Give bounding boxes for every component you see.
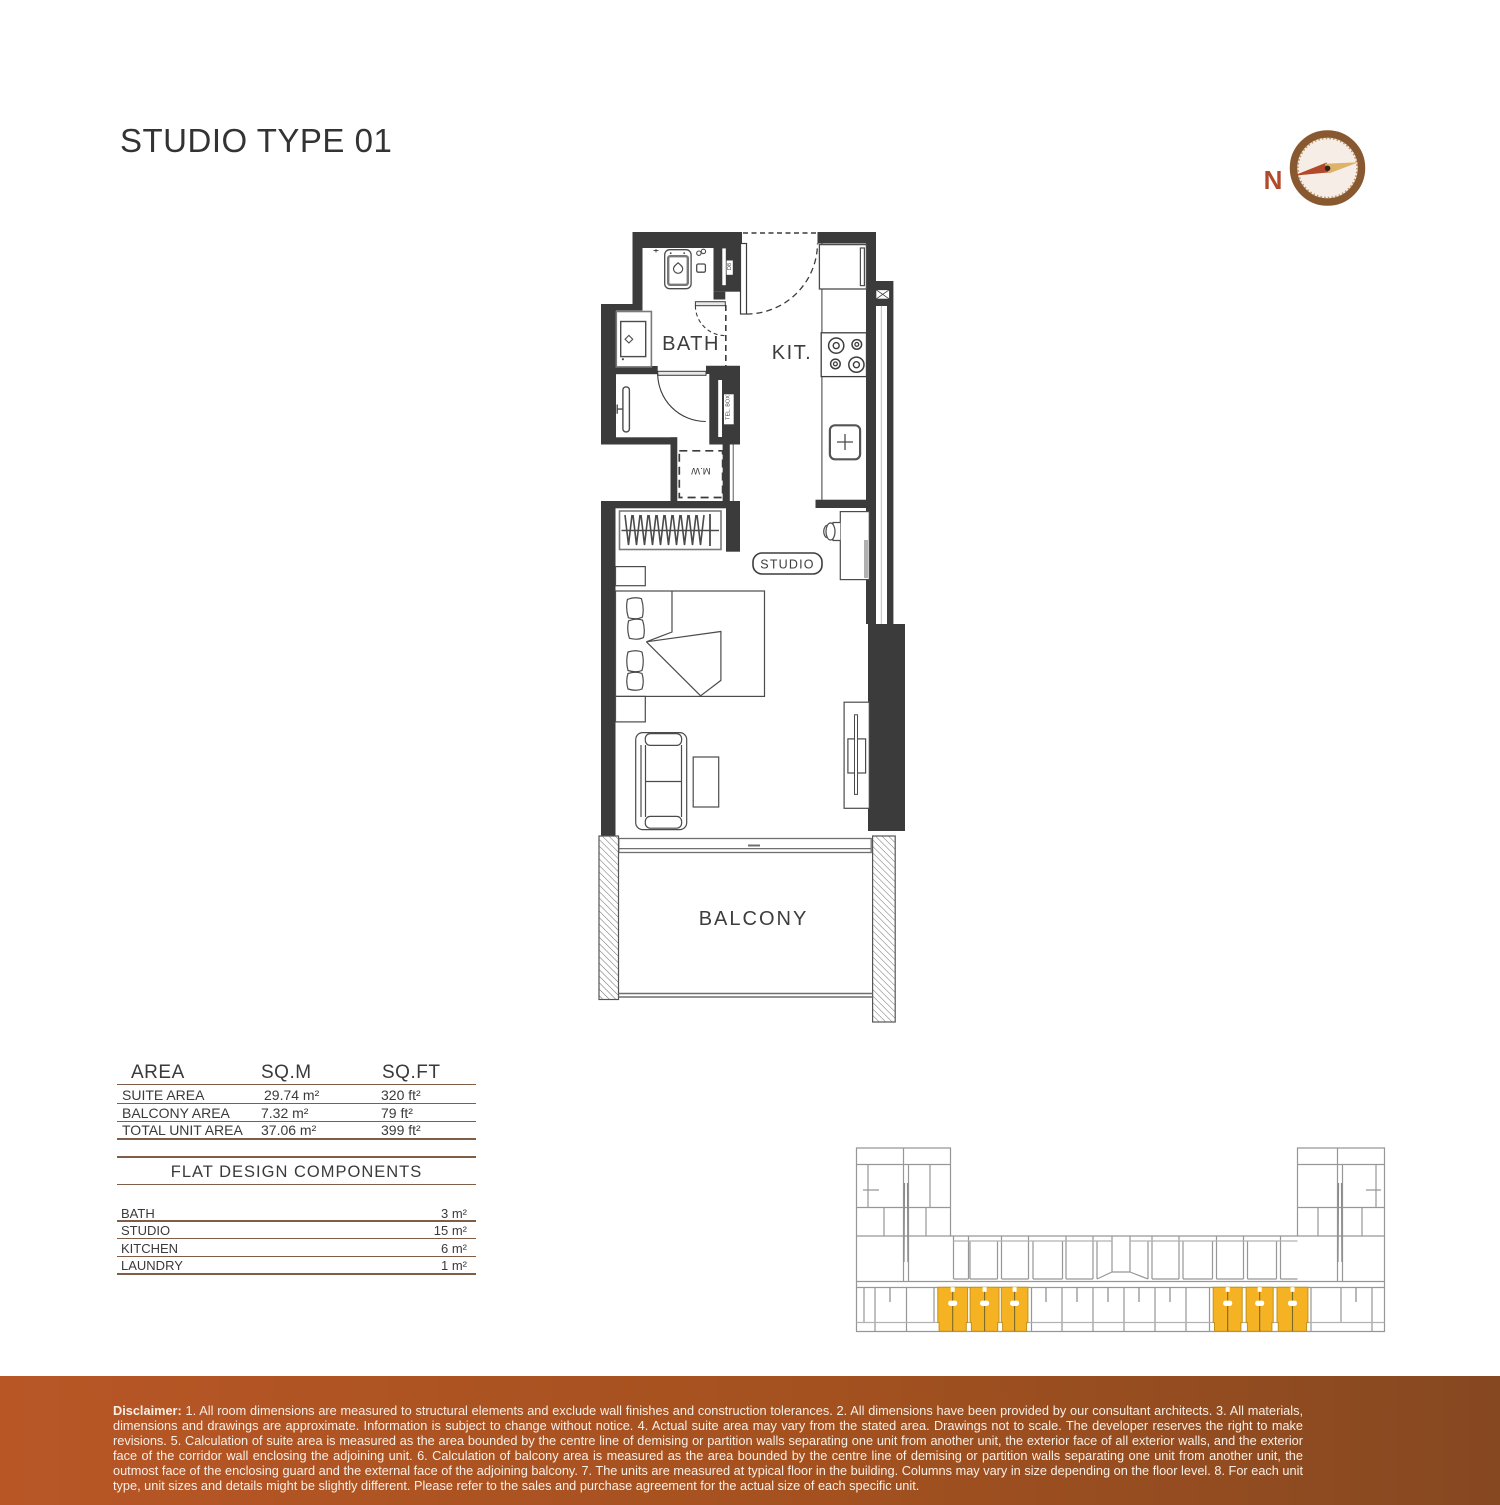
svg-text:KIT.: KIT. [772, 342, 812, 364]
svg-text:BATH: BATH [662, 333, 720, 355]
svg-text:STUDIO: STUDIO [760, 558, 814, 572]
svg-text:BALCONY: BALCONY [699, 908, 809, 930]
svg-text:M.W: M.W [691, 465, 711, 476]
svg-text:N: N [1264, 165, 1283, 195]
svg-text:D8: D8 [727, 263, 733, 270]
svg-text:TEL. BOX: TEL. BOX [726, 395, 732, 420]
